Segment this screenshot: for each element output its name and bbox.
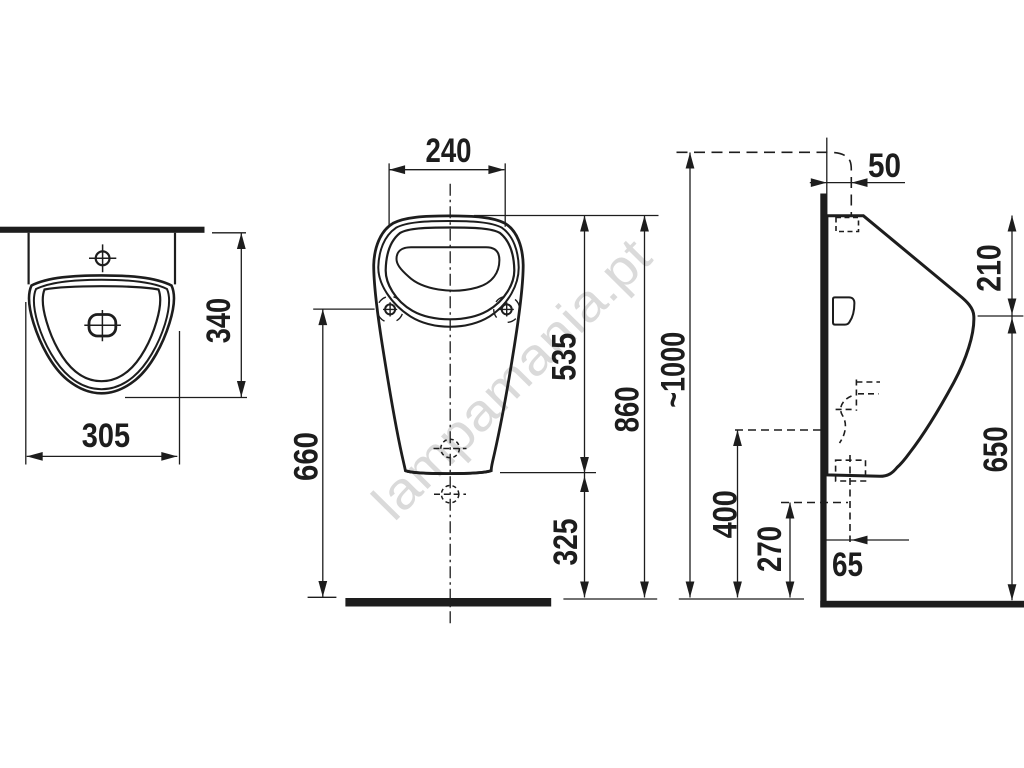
svg-text:240: 240 xyxy=(426,132,472,170)
svg-text:400: 400 xyxy=(707,490,745,538)
svg-text:340: 340 xyxy=(200,298,238,344)
svg-text:210: 210 xyxy=(971,244,1009,291)
svg-text:270: 270 xyxy=(751,526,789,572)
svg-text:660: 660 xyxy=(287,432,325,481)
svg-text:305: 305 xyxy=(82,417,130,455)
svg-text:50: 50 xyxy=(868,147,901,185)
svg-text:325: 325 xyxy=(547,519,585,566)
svg-text:535: 535 xyxy=(545,333,583,381)
svg-text:65: 65 xyxy=(832,546,863,584)
svg-text:~1000: ~1000 xyxy=(654,332,692,408)
svg-text:860: 860 xyxy=(609,386,647,432)
svg-text:650: 650 xyxy=(977,426,1015,472)
